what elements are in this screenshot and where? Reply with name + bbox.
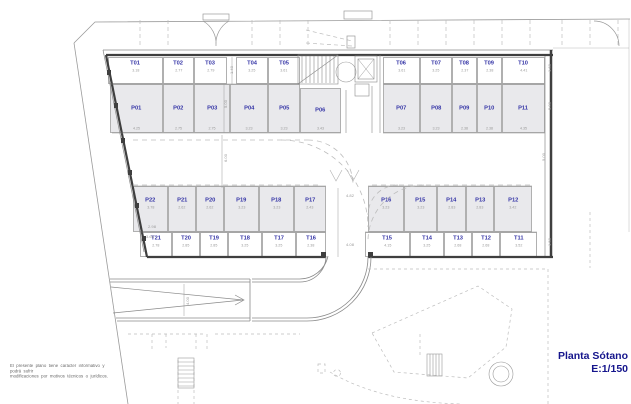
title-block: Planta Sótano E:1/150 — [558, 350, 628, 376]
dim-lane-lower: 4.08 — [346, 243, 354, 247]
dim-corner-a: 2.98 — [148, 225, 156, 229]
dimension-labels: 5.00 6.00 1.40 4.82 4.08 4.00 2.98 3.68 … — [0, 0, 631, 404]
plan-scale: E:1/150 — [558, 363, 628, 376]
floor-plan: T013.18T022.77T032.79T043.25T053.61T063.… — [0, 0, 631, 404]
dim-right-top: 1.60 — [548, 64, 552, 72]
dim-right-mid: 5.00 — [542, 153, 546, 161]
disclaimer-line1: El presente plano tiene carácter informa… — [10, 364, 109, 375]
dim-stall-depth: 5.00 — [224, 100, 228, 108]
disclaimer-line2: modificaciones por motivos técnicos o ju… — [10, 375, 109, 380]
dim-corner-b: 3.68 — [146, 235, 154, 239]
disclaimer-note: El presente plano tiene carácter informa… — [10, 364, 109, 380]
dim-t03-strip: 1.40 — [230, 66, 234, 74]
plan-title: Planta Sótano — [558, 350, 628, 363]
dim-right-lower: 1.50 — [548, 238, 552, 246]
dim-lane-upper: 4.82 — [346, 194, 354, 198]
dim-right-upper: 5.00 — [548, 102, 552, 110]
dim-aisle-width: 6.00 — [224, 154, 228, 162]
dim-ramp-width: 4.00 — [186, 297, 190, 305]
